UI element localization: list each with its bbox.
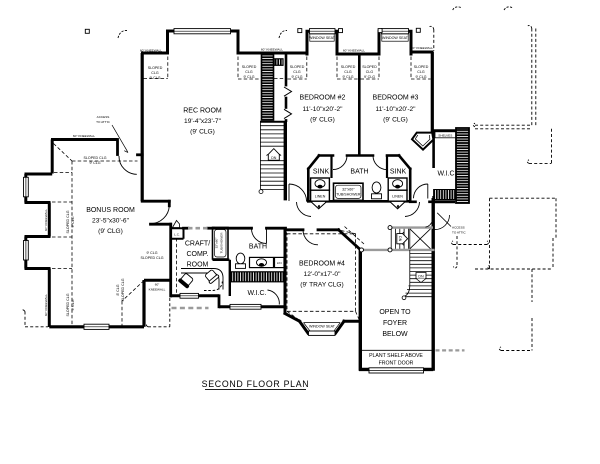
svg-text:KNEEWALL: KNEEWALL [149, 288, 166, 292]
svg-text:W.I.C.: W.I.C. [437, 171, 456, 178]
svg-text:BELOW: BELOW [382, 331, 408, 338]
svg-text:60" KNEEWALL: 60" KNEEWALL [44, 209, 48, 231]
svg-text:SLOPED: SLOPED [242, 65, 257, 69]
svg-text:LINEN: LINEN [315, 195, 326, 199]
svg-text:ROOM: ROOM [187, 262, 209, 269]
svg-text:8' CLG: 8' CLG [116, 284, 120, 295]
svg-text:PLANT SHELF ABOVE: PLANT SHELF ABOVE [369, 353, 423, 359]
svg-text:SLOPED: SLOPED [362, 65, 377, 69]
svg-text:CLG: CLG [245, 70, 253, 74]
svg-text:TUB/SHOWER: TUB/SHOWER [220, 232, 224, 254]
svg-text:32"x60": 32"x60" [215, 238, 219, 249]
svg-text:WINDOW SEAT: WINDOW SEAT [309, 325, 336, 329]
svg-text:9' CLG: 9' CLG [146, 251, 157, 255]
svg-text:ACCESS: ACCESS [452, 226, 465, 230]
svg-text:60" KNEEWALL: 60" KNEEWALL [73, 134, 95, 138]
svg-text:(9' CLG): (9' CLG) [190, 129, 215, 136]
svg-text:SLOPED: SLOPED [414, 65, 429, 69]
svg-text:BATH: BATH [249, 244, 267, 251]
svg-text:BONUS ROOM: BONUS ROOM [86, 207, 135, 214]
svg-text:SLOPED CLG: SLOPED CLG [121, 278, 125, 301]
svg-text:12'-0"x17'-0": 12'-0"x17'-0" [304, 271, 342, 278]
svg-text:W.I.C.: W.I.C. [247, 290, 266, 297]
svg-text:60": 60" [155, 283, 160, 287]
svg-text:WINDOW SEAT: WINDOW SEAT [309, 36, 336, 40]
svg-text:(9' CLG): (9' CLG) [98, 228, 123, 235]
svg-text:CLG: CLG [151, 71, 159, 75]
svg-text:9' CLG: 9' CLG [149, 76, 160, 80]
svg-text:32"x60": 32"x60" [342, 188, 355, 192]
svg-text:(9' CLG): (9' CLG) [310, 117, 335, 124]
svg-text:TUB/SHOWER: TUB/SHOWER [336, 193, 361, 197]
svg-text:LIN: LIN [277, 261, 282, 265]
svg-text:BATH: BATH [350, 169, 368, 176]
svg-text:19'-4"x23'-7": 19'-4"x23'-7" [184, 118, 222, 125]
svg-text:REC ROOM: REC ROOM [183, 108, 222, 115]
svg-text:SLOPED CLG: SLOPED CLG [84, 156, 107, 160]
svg-text:(9' CLG): (9' CLG) [383, 117, 408, 124]
svg-text:CLG: CLG [366, 70, 374, 74]
svg-text:TO ATTIC: TO ATTIC [452, 231, 466, 235]
svg-text:(9' TRAY CLG): (9' TRAY CLG) [300, 282, 343, 289]
svg-text:LINEN: LINEN [392, 195, 403, 199]
svg-text:CLG: CLG [293, 70, 301, 74]
svg-text:9' CLG: 9' CLG [89, 161, 100, 165]
svg-text:FOYER: FOYER [383, 320, 407, 327]
svg-text:COMP.: COMP. [186, 251, 208, 258]
svg-text:BEDROOM #3: BEDROOM #3 [373, 95, 419, 102]
svg-text:BEDROOM #2: BEDROOM #2 [300, 95, 346, 102]
svg-text:SINK: SINK [390, 169, 407, 176]
svg-text:SLOPED: SLOPED [290, 65, 305, 69]
svg-text:ACCESS: ACCESS [97, 115, 110, 119]
svg-text:CLG: CLG [417, 70, 425, 74]
svg-text:11'-10"x20'-2": 11'-10"x20'-2" [375, 106, 416, 113]
svg-text:9' CLG: 9' CLG [71, 299, 75, 310]
svg-text:FRONT DOOR: FRONT DOOR [379, 360, 414, 366]
svg-text:9' CLG: 9' CLG [243, 75, 254, 79]
svg-text:SECOND FLOOR PLAN: SECOND FLOOR PLAN [202, 379, 310, 389]
svg-text:L.C.: L.C. [174, 233, 180, 237]
svg-text:9' CLG: 9' CLG [291, 75, 302, 79]
svg-text:SLOPED CLG: SLOPED CLG [66, 210, 70, 233]
svg-text:SLOPED CLG: SLOPED CLG [66, 293, 70, 316]
svg-text:60" KNEEWALL: 60" KNEEWALL [140, 48, 162, 52]
svg-text:9' CLG: 9' CLG [71, 216, 75, 227]
svg-text:SINK: SINK [313, 169, 330, 176]
svg-text:BEDROOM #4: BEDROOM #4 [299, 261, 345, 268]
svg-text:9' CLG: 9' CLG [415, 75, 426, 79]
svg-text:9' CLG: 9' CLG [364, 75, 375, 79]
svg-text:60" KNEEWALL: 60" KNEEWALL [44, 294, 48, 316]
svg-text:60" KNEEWALL: 60" KNEEWALL [261, 47, 283, 51]
svg-text:SLOPED: SLOPED [148, 66, 163, 70]
svg-text:TO ATTIC: TO ATTIC [96, 120, 110, 124]
svg-text:DN: DN [271, 156, 277, 160]
svg-text:60" KNEEWALL: 60" KNEEWALL [411, 46, 433, 50]
svg-text:CLG: CLG [344, 70, 352, 74]
svg-text:OPEN TO: OPEN TO [379, 309, 411, 316]
svg-text:60" KNEEWALL: 60" KNEEWALL [343, 48, 365, 52]
svg-text:23'-5"x30'-6": 23'-5"x30'-6" [92, 218, 130, 225]
svg-text:CRAFT/: CRAFT/ [185, 241, 210, 248]
svg-text:SLOPED CLG: SLOPED CLG [141, 256, 164, 260]
svg-text:11'-10"x20'-2": 11'-10"x20'-2" [302, 106, 343, 113]
svg-text:SHELVES: SHELVES [438, 133, 452, 137]
svg-text:DN: DN [398, 236, 402, 242]
svg-text:SLOPED: SLOPED [341, 65, 356, 69]
svg-text:9' CLG: 9' CLG [342, 75, 353, 79]
svg-text:DN: DN [418, 275, 424, 279]
svg-text:WINDOW SEAT: WINDOW SEAT [382, 36, 409, 40]
